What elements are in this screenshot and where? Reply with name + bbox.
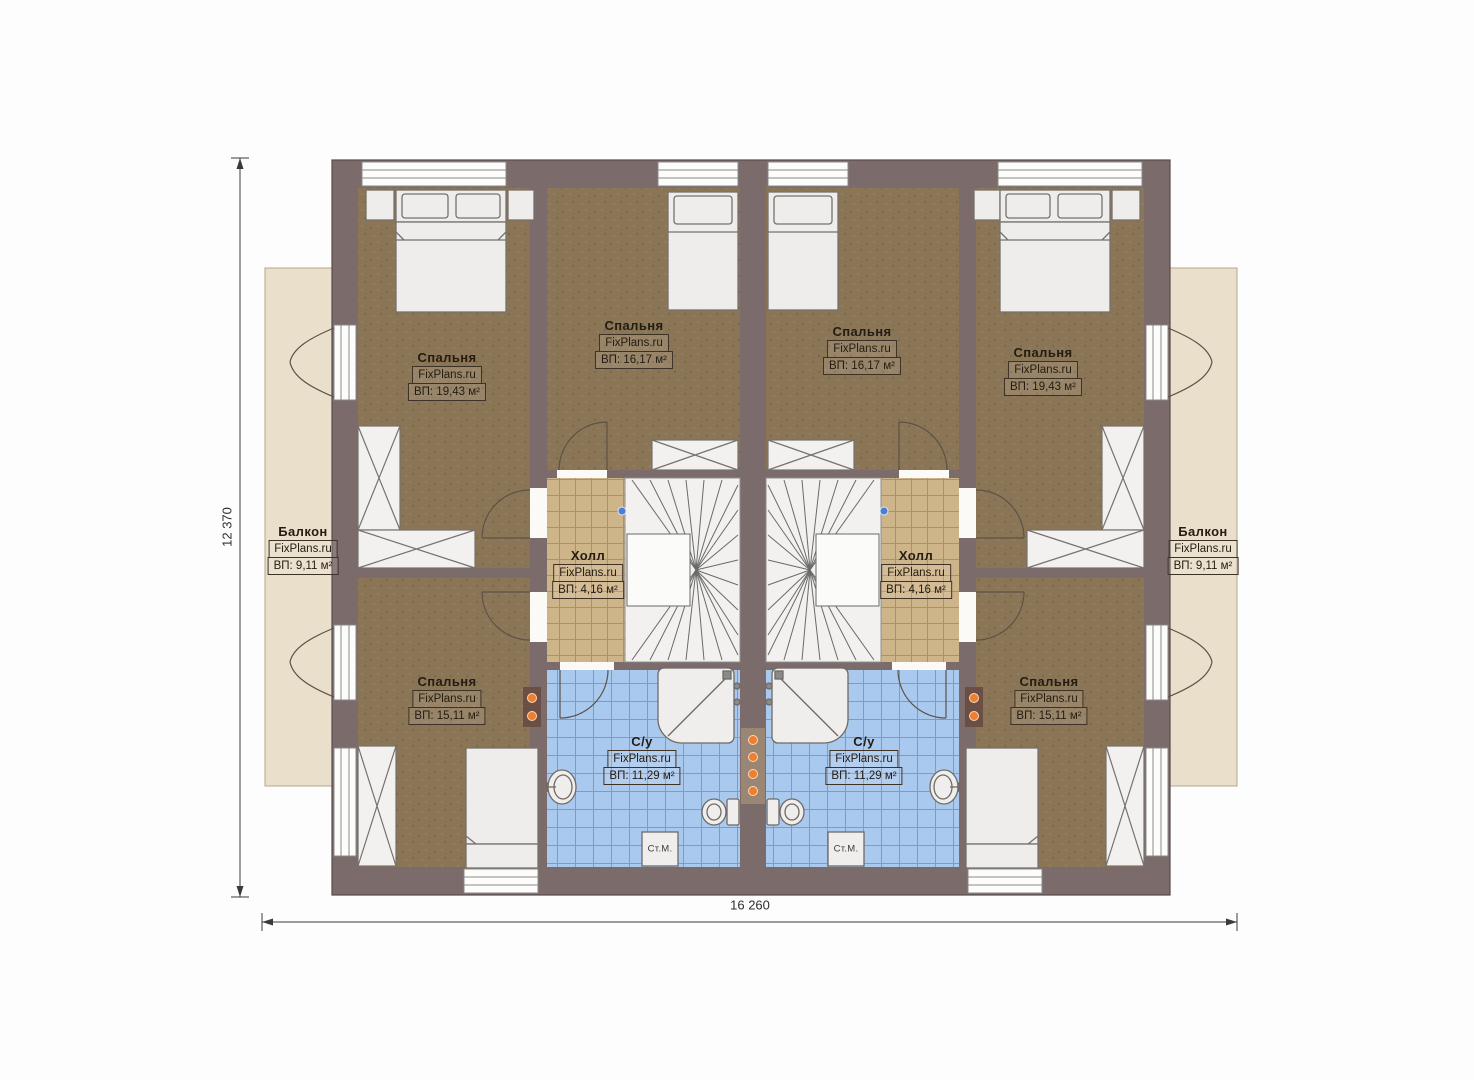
watermark: FixPlans.ru [1014, 690, 1084, 708]
nightstand [508, 190, 534, 220]
single-bed-bottom-right [966, 748, 1038, 868]
toilet [767, 799, 804, 825]
window [968, 869, 1042, 893]
room-label-hall-left: Холл FixPlans.ru ВП: 4,16 м² [552, 548, 624, 599]
room-name: С/у [603, 734, 680, 749]
watermark: FixPlans.ru [881, 564, 951, 582]
room-area: ВП: 11,29 м² [603, 767, 680, 785]
dimension-height-label: 12 370 [220, 507, 235, 547]
wardrobe [1027, 530, 1144, 568]
room-area: ВП: 15,11 м² [408, 707, 485, 725]
room-area: ВП: 19,43 м² [408, 383, 486, 401]
nightstand [974, 190, 1000, 220]
room-area: ВП: 9,11 м² [1168, 557, 1239, 575]
room-label-bedroom-bottom-left: Спальня FixPlans.ru ВП: 15,11 м² [408, 674, 485, 725]
room-name: С/у [825, 734, 902, 749]
balcony-door-opening [1146, 325, 1168, 400]
room-name: Спальня [1010, 674, 1087, 689]
shower-head-icon [723, 671, 731, 679]
room-area: ВП: 19,43 м² [1004, 378, 1082, 396]
single-bed-bottom-left [466, 748, 538, 868]
wardrobe [358, 746, 396, 866]
balcony-door-opening [334, 625, 356, 700]
pillow [674, 196, 732, 224]
toilet [702, 799, 739, 825]
watermark: FixPlans.ru [412, 366, 482, 384]
watermark: FixPlans.ru [1008, 361, 1078, 379]
watermark: FixPlans.ru [412, 690, 482, 708]
shower [772, 668, 848, 743]
washing-machine-label: Ст.М. [834, 844, 859, 855]
stair-landing [627, 534, 690, 606]
room-label-balcony-left: Балкон FixPlans.ru ВП: 9,11 м² [268, 524, 339, 575]
room-label-bedroom-mid-right: Спальня FixPlans.ru ВП: 16,17 м² [823, 324, 901, 375]
wardrobe [1102, 426, 1144, 530]
room-name: Спальня [408, 674, 485, 689]
mixer-valve-icon [766, 699, 772, 705]
window [362, 162, 506, 186]
wardrobe [768, 440, 854, 470]
mixer-valve-icon [734, 683, 740, 689]
room-label-bedroom-top-right: Спальня FixPlans.ru ВП: 19,43 м² [1004, 345, 1082, 396]
watermark: FixPlans.ru [599, 334, 669, 352]
level-marker [880, 507, 888, 515]
watermark: FixPlans.ru [829, 750, 899, 768]
watermark: FixPlans.ru [553, 564, 623, 582]
window [464, 869, 538, 893]
room-label-bathroom-right: С/у FixPlans.ru ВП: 11,29 м² [825, 734, 902, 785]
shower [658, 668, 734, 743]
stair-landing [816, 534, 879, 606]
watermark: FixPlans.ru [1168, 540, 1238, 558]
watermark: FixPlans.ru [268, 540, 338, 558]
mixer-valve-icon [766, 683, 772, 689]
room-name: Спальня [1004, 345, 1082, 360]
pillow [774, 196, 832, 224]
balcony-door-opening [334, 325, 356, 400]
window [768, 162, 848, 186]
room-area: ВП: 4,16 м² [552, 581, 624, 599]
room-label-bathroom-left: С/у FixPlans.ru ВП: 11,29 м² [603, 734, 680, 785]
room-label-bedroom-mid-left: Спальня FixPlans.ru ВП: 16,17 м² [595, 318, 673, 369]
pillow [1006, 194, 1050, 218]
room-name: Спальня [823, 324, 901, 339]
mixer-valve-icon [734, 699, 740, 705]
wardrobe [652, 440, 738, 470]
nightstand [1112, 190, 1140, 220]
wardrobe [358, 530, 475, 568]
room-area: ВП: 4,16 м² [880, 581, 952, 599]
room-name: Балкон [268, 524, 339, 539]
room-area: ВП: 9,11 м² [268, 557, 339, 575]
washing-machine-label: Ст.М. [648, 844, 673, 855]
room-name: Балкон [1168, 524, 1239, 539]
floor-plan-page: Спальня FixPlans.ru ВП: 19,43 м² Спальня… [0, 0, 1474, 1080]
room-label-bedroom-top-left: Спальня FixPlans.ru ВП: 19,43 м² [408, 350, 486, 401]
room-area: ВП: 11,29 м² [825, 767, 902, 785]
watermark: FixPlans.ru [607, 750, 677, 768]
single-bed-mid-right [768, 192, 838, 310]
window [334, 748, 356, 856]
wardrobe [1106, 746, 1144, 866]
room-name: Спальня [408, 350, 486, 365]
single-bed-mid-left [668, 192, 738, 310]
level-marker [618, 507, 626, 515]
room-name: Холл [552, 548, 624, 563]
shower-head-icon [775, 671, 783, 679]
pillow [456, 194, 500, 218]
nightstand [366, 190, 394, 220]
sink [930, 770, 959, 804]
wardrobe [358, 426, 400, 530]
room-area: ВП: 16,17 м² [823, 357, 901, 375]
room-area: ВП: 16,17 м² [595, 351, 673, 369]
pillow [402, 194, 448, 218]
sink [547, 770, 576, 804]
room-label-hall-right: Холл FixPlans.ru ВП: 4,16 м² [880, 548, 952, 599]
room-label-balcony-right: Балкон FixPlans.ru ВП: 9,11 м² [1168, 524, 1239, 575]
window [658, 162, 738, 186]
room-area: ВП: 15,11 м² [1010, 707, 1087, 725]
room-name: Холл [880, 548, 952, 563]
pillow [1058, 194, 1102, 218]
room-name: Спальня [595, 318, 673, 333]
room-label-bedroom-bottom-right: Спальня FixPlans.ru ВП: 15,11 м² [1010, 674, 1087, 725]
window [1146, 748, 1168, 856]
watermark: FixPlans.ru [827, 340, 897, 358]
balcony-door-opening [1146, 625, 1168, 700]
dimension-line-bottom [262, 913, 1237, 931]
window [998, 162, 1142, 186]
dimension-width-label: 16 260 [730, 898, 770, 913]
